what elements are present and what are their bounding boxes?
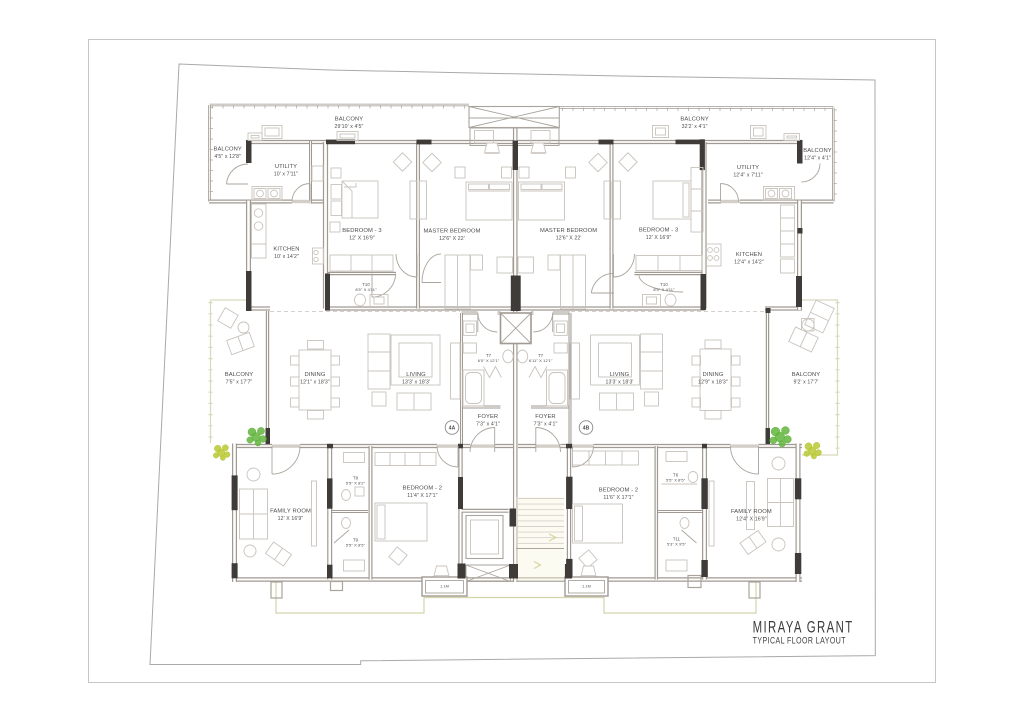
svg-text:7'3" x 4'1": 7'3" x 4'1" [534,422,558,428]
svg-text:BEDROOM - 2: BEDROOM - 2 [599,488,638,494]
svg-text:12'4" x 4'1": 12'4" x 4'1" [804,156,831,162]
svg-text:MASTER BEDROOM: MASTER BEDROOM [540,228,597,234]
svg-text:12'1" x 18'3": 12'1" x 18'3" [300,380,330,386]
svg-text:FAMILY ROOM: FAMILY ROOM [270,509,311,515]
svg-text:MIRAYA GRANT: MIRAYA GRANT [753,619,854,637]
svg-text:BEDROOM - 2: BEDROOM - 2 [403,486,442,492]
svg-text:8'5" X 4'11": 8'5" X 4'11" [653,287,675,292]
svg-text:9'2' x 17'7': 9'2' x 17'7' [793,380,818,386]
svg-text:6'11" X 12'1": 6'11" X 12'1" [529,358,553,363]
svg-text:13'3' x 18'3': 13'3' x 18'3' [605,380,633,386]
svg-text:BALCONY: BALCONY [213,147,241,153]
svg-text:5'5" X 8'5": 5'5" X 8'5" [666,478,686,483]
svg-text:5'3" X 9'5": 5'3" X 9'5" [667,542,687,547]
svg-text:12'4" x 14'2": 12'4" x 14'2" [734,260,764,266]
svg-text:1.1M: 1.1M [440,585,449,589]
svg-text:8'5" X 4'11": 8'5" X 4'11" [355,287,377,292]
svg-text:FOYER: FOYER [535,414,555,420]
svg-text:KITCHEN: KITCHEN [736,252,762,258]
svg-text:1.1M: 1.1M [582,585,591,589]
svg-text:DINING: DINING [703,372,724,378]
svg-text:32'2' x 4'1": 32'2' x 4'1" [682,124,708,130]
svg-text:KITCHEN: KITCHEN [273,247,299,253]
svg-text:MASTER BEDROOM: MASTER BEDROOM [423,229,480,235]
svg-text:12'4" X 16'9": 12'4" X 16'9" [736,517,767,523]
svg-text:BALCONY: BALCONY [335,117,363,123]
svg-text:13'3' x 18'3': 13'3' x 18'3' [402,380,430,386]
svg-text:UTILITY: UTILITY [275,164,297,170]
svg-text:11'6" X 17'1": 11'6" X 17'1" [603,495,633,501]
svg-text:BEDROOM - 3: BEDROOM - 3 [342,228,381,234]
svg-text:7'5" x 17'7": 7'5" x 17'7" [226,380,253,386]
svg-text:BALCONY: BALCONY [680,117,708,123]
svg-text:BALCONY: BALCONY [792,372,820,378]
svg-text:LIVING: LIVING [610,372,630,378]
svg-text:12'6" X 22': 12'6" X 22' [556,236,582,242]
svg-text:4'5" x 12'8": 4'5" x 12'8" [214,154,241,160]
svg-text:BALCONY: BALCONY [803,148,831,154]
svg-text:10' x 7'11": 10' x 7'11" [274,172,298,178]
svg-text:LIVING: LIVING [406,372,426,378]
svg-text:12' X 16'9": 12' X 16'9" [349,236,375,242]
svg-text:12'9" x 18'3": 12'9" x 18'3" [698,380,728,386]
svg-text:10' x 14'2": 10' x 14'2" [274,254,299,260]
svg-text:29'10' x 4'5": 29'10' x 4'5" [335,124,364,130]
svg-text:4B: 4B [583,426,590,432]
svg-text:5'5" X 8'2": 5'5" X 8'2" [346,481,366,486]
svg-text:12' X 16'9": 12' X 16'9" [646,235,672,241]
svg-text:DINING: DINING [305,372,326,378]
svg-text:6'0" X 12'1": 6'0" X 12'1" [478,358,500,363]
svg-text:FAMILY ROOM: FAMILY ROOM [731,509,772,515]
svg-text:12' X 16'9": 12' X 16'9" [278,516,304,522]
svg-text:12'4" x 7'11": 12'4" x 7'11" [733,173,762,179]
svg-text:7'3" x 4'1": 7'3" x 4'1" [476,422,500,428]
svg-text:UTILITY: UTILITY [737,165,759,171]
svg-text:BALCONY: BALCONY [225,372,253,378]
svg-text:5'5" X 8'5": 5'5" X 8'5" [346,543,366,548]
svg-text:FOYER: FOYER [478,414,498,420]
svg-text:11'4" X 17'1": 11'4" X 17'1" [407,493,437,499]
svg-text:TYPICAL FLOOR LAYOUT: TYPICAL FLOOR LAYOUT [753,636,846,646]
svg-text:12'6" X 22': 12'6" X 22' [439,236,465,242]
svg-text:BEDROOM - 3: BEDROOM - 3 [639,228,678,234]
svg-text:4A: 4A [449,426,456,432]
